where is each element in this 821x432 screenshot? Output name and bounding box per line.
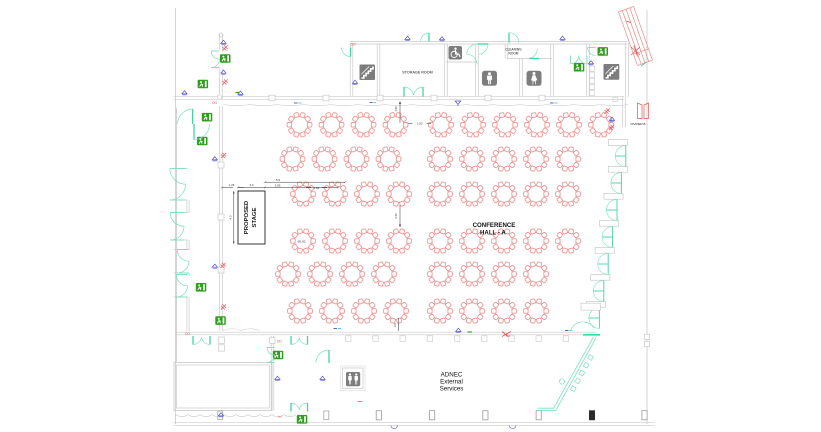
svg-text:Services: Services xyxy=(440,386,464,393)
svg-text:ADNEC: ADNEC xyxy=(441,372,463,379)
svg-text:OO: OO xyxy=(212,101,218,105)
svg-text:HALL - A: HALL - A xyxy=(480,230,506,237)
svg-text:OO: OO xyxy=(350,43,356,47)
svg-text:STORAGE ROOM: STORAGE ROOM xyxy=(402,71,432,75)
svg-text:2.50: 2.50 xyxy=(394,213,398,219)
svg-text:1.84: 1.84 xyxy=(314,186,320,190)
svg-text:3.0: 3.0 xyxy=(249,183,253,187)
svg-text:Ø1.83: Ø1.83 xyxy=(298,240,306,244)
svg-text:DO: DO xyxy=(185,332,190,336)
svg-text:1.50: 1.50 xyxy=(417,121,423,125)
svg-text:5.9: 5.9 xyxy=(276,178,280,182)
svg-text:External: External xyxy=(440,379,463,386)
svg-text:CONFERENCE: CONFERENCE xyxy=(473,222,516,229)
svg-text:2.83: 2.83 xyxy=(275,183,281,187)
svg-text:2.5: 2.5 xyxy=(393,323,397,327)
svg-text:(e): (e) xyxy=(278,415,282,419)
svg-text:PROPOSED: PROPOSED xyxy=(244,201,250,234)
svg-text:1.50: 1.50 xyxy=(394,106,398,112)
svg-text:1.26: 1.26 xyxy=(229,183,235,187)
svg-text:STAGE: STAGE xyxy=(252,208,258,228)
svg-text:DIVIDER B: DIVIDER B xyxy=(630,122,645,126)
svg-text:FX: FX xyxy=(506,334,511,338)
svg-text:DO: DO xyxy=(277,340,282,344)
svg-text:ROOM: ROOM xyxy=(509,52,519,56)
svg-text:4.0: 4.0 xyxy=(229,215,233,219)
